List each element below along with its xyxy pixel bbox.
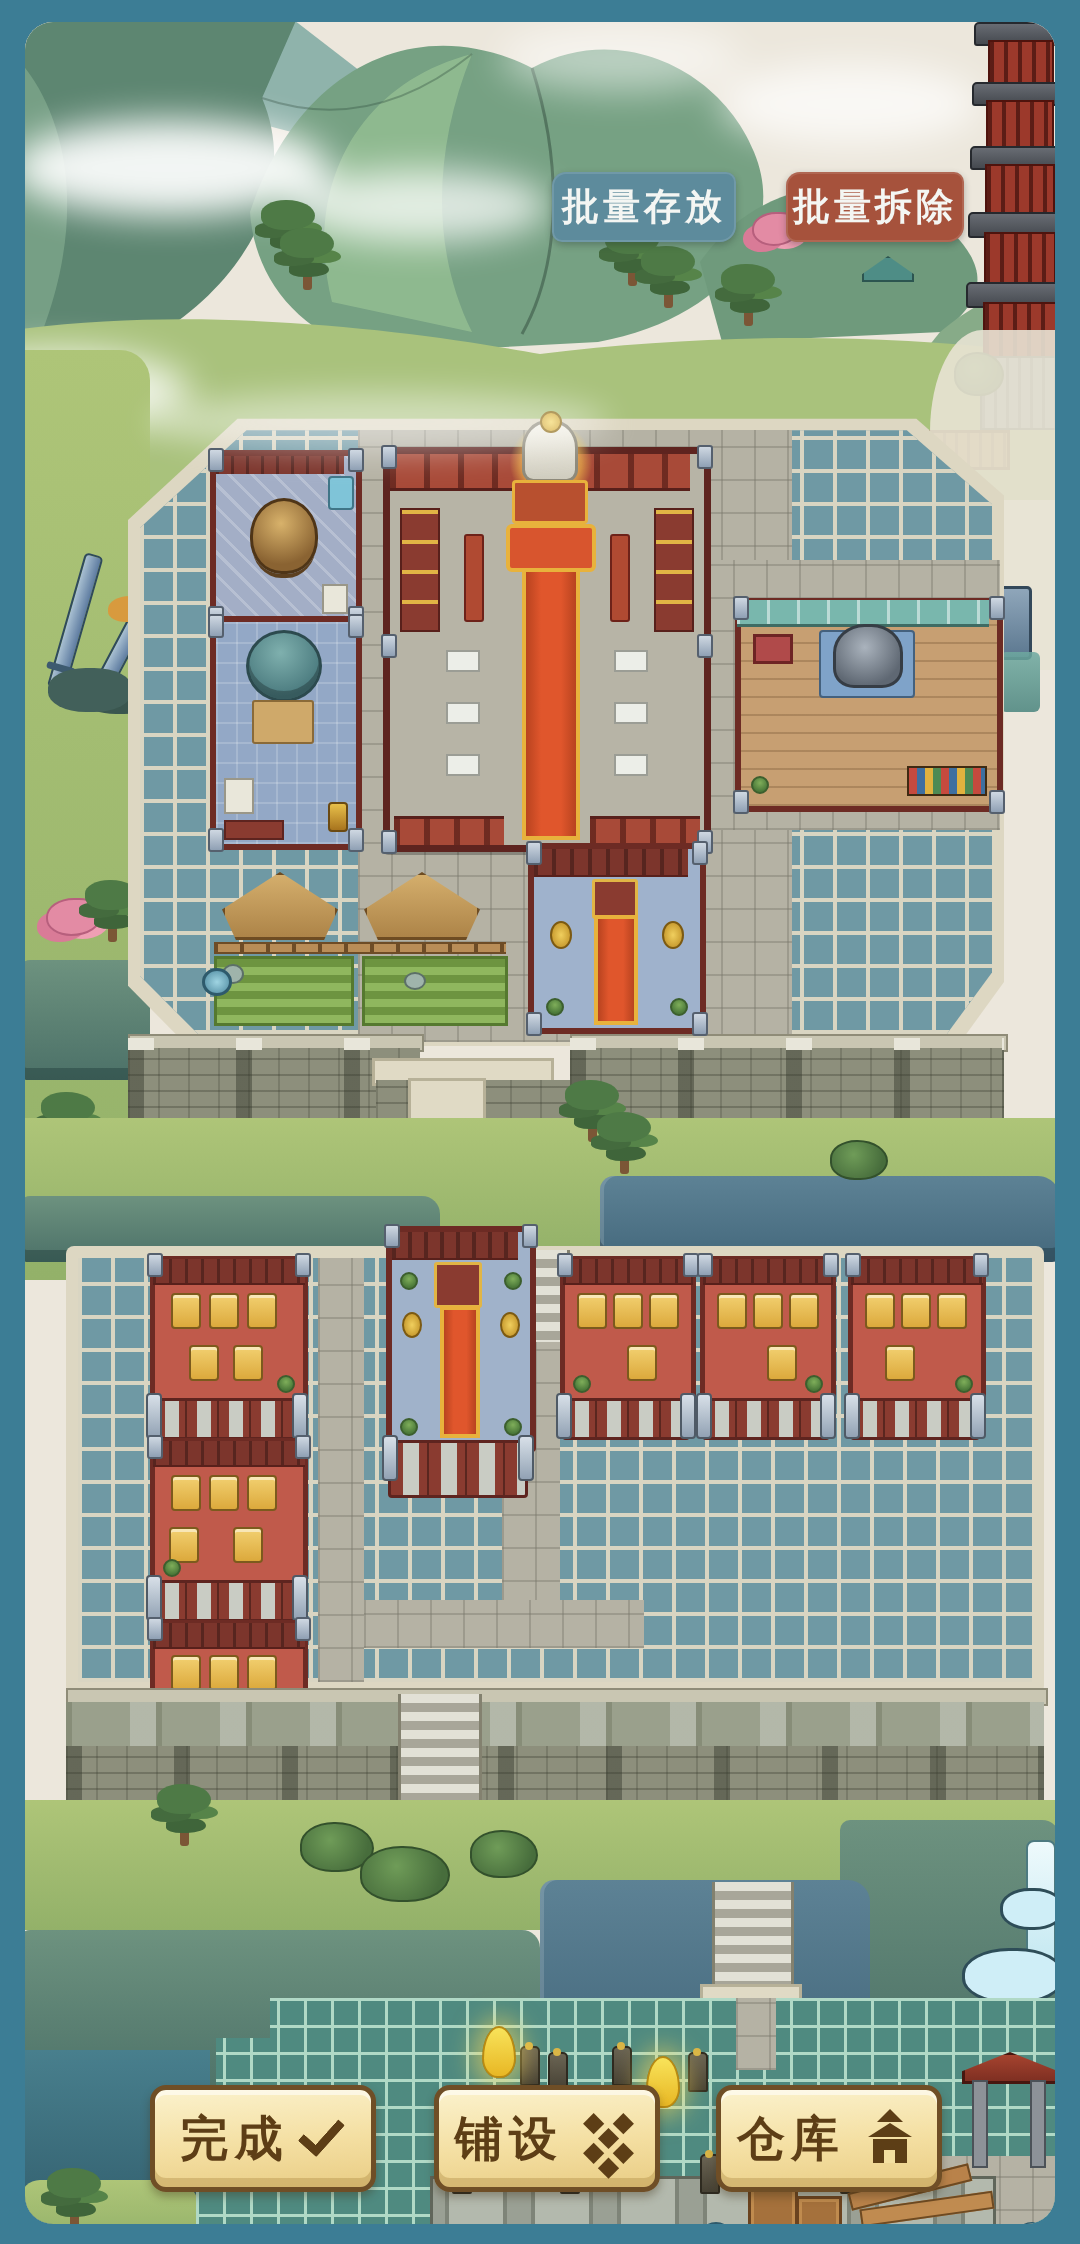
glass-canopy: [737, 600, 989, 627]
waterfall-pool: [962, 1948, 1064, 2004]
bronze-statue[interactable]: [688, 2052, 708, 2092]
batch-demolish-button[interactable]: 批量拆除: [786, 172, 964, 242]
bronze-statue[interactable]: [520, 2046, 540, 2086]
lantern: [402, 1312, 422, 1338]
reception-counter: [434, 1262, 482, 1308]
crate: [796, 2196, 842, 2242]
pine-tree: [180, 1812, 189, 1846]
batch-demolish-label: 批量拆除: [793, 186, 957, 227]
shrine-hall[interactable]: [528, 843, 706, 1034]
room-balcony: [562, 1398, 690, 1440]
shelf-band: [216, 456, 344, 474]
prayer-table: [614, 650, 648, 672]
side-hall-east[interactable]: [735, 598, 1003, 812]
gate-post: [1030, 2080, 1046, 2168]
stone-path-cross: [364, 1600, 644, 1648]
lantern: [662, 921, 684, 949]
stone-path-west: [318, 1258, 364, 1682]
guest-room[interactable]: [700, 1256, 836, 1408]
bell-pavilion-hall[interactable]: [210, 616, 362, 850]
bush: [470, 1830, 538, 1878]
bench: [224, 820, 284, 840]
water-jar: [1016, 2222, 1048, 2244]
water-jar: [700, 2222, 732, 2244]
pine-tree: [108, 908, 117, 942]
lantern: [500, 1312, 520, 1338]
guest-room[interactable]: [560, 1256, 696, 1408]
front-bench: [394, 816, 504, 845]
warehouse-label: 仓库: [737, 2107, 845, 2171]
check-icon: [297, 2109, 344, 2158]
east-altar-cabinets: [654, 508, 694, 632]
water-jar: [202, 968, 232, 996]
wall-art: [753, 634, 793, 664]
shrine-altar: [592, 879, 638, 919]
lower-wall-stairs: [398, 1694, 482, 1812]
prayer-table: [446, 702, 480, 724]
pine-tree: [628, 252, 637, 286]
farm-fence: [214, 942, 506, 954]
bookshelf[interactable]: [907, 766, 987, 796]
pillar: [610, 534, 630, 622]
bottom-path: [736, 1998, 776, 2070]
prayer-mat: [252, 700, 314, 744]
pine-tree: [70, 2196, 79, 2230]
floor-lantern: [328, 802, 348, 832]
statue-altar: [512, 480, 588, 524]
paper-mat: [322, 584, 348, 614]
farm-field[interactable]: [362, 956, 508, 1026]
front-bench: [590, 816, 700, 845]
incense-hall[interactable]: [210, 450, 362, 628]
rock: [48, 668, 132, 712]
pine-tree: [620, 1140, 629, 1174]
west-altar-cabinets: [400, 508, 440, 632]
bronze-censer[interactable]: [250, 498, 318, 574]
pine-tree: [303, 256, 312, 290]
bell-canopy[interactable]: [246, 630, 322, 702]
scene-map: [0, 0, 1080, 2244]
hill-stairs: [712, 1882, 794, 1986]
guest-room[interactable]: [150, 1438, 308, 1590]
red-carpet: [522, 550, 580, 840]
prayer-table: [614, 702, 648, 724]
shrine-carpet: [594, 915, 638, 1025]
forge-machine[interactable]: [833, 624, 903, 688]
guest-room[interactable]: [848, 1256, 986, 1408]
pave-button[interactable]: 铺设: [434, 2085, 660, 2192]
pave-label: 铺设: [455, 2107, 563, 2171]
room-balcony: [702, 1398, 830, 1440]
water-basin: [328, 476, 354, 510]
pillar: [464, 534, 484, 622]
floor-tiles-icon: [577, 2108, 639, 2170]
room-balcony: [152, 1398, 302, 1440]
warehouse-button[interactable]: 仓库: [716, 2085, 942, 2192]
warehouse-icon: [859, 2109, 921, 2169]
lower-wall: [66, 1746, 1044, 1806]
batch-store-label: 批量存放: [562, 186, 726, 227]
room-balcony: [850, 1398, 980, 1440]
bush: [360, 1846, 450, 1902]
waterfall-pool: [1000, 1888, 1064, 1930]
main-hall[interactable]: [383, 447, 711, 852]
prayer-table: [446, 650, 480, 672]
paper-mat: [224, 778, 254, 814]
waterfall-stream: [1000, 652, 1040, 712]
prayer-table: [614, 754, 648, 776]
lantern: [550, 921, 572, 949]
pine-tree: [588, 1108, 597, 1142]
gate-post: [972, 2080, 988, 2168]
room-balcony: [152, 1580, 302, 1622]
guest-room[interactable]: [150, 1256, 308, 1408]
stepping-stone: [404, 972, 426, 990]
farm-plot[interactable]: [214, 872, 506, 1022]
mist: [150, 392, 610, 452]
batch-store-button[interactable]: 批量存放: [552, 172, 736, 242]
pine-tree: [664, 274, 673, 308]
finish-button[interactable]: 完成: [150, 2085, 376, 2192]
bush: [830, 1140, 888, 1180]
bronze-statue[interactable]: [612, 2046, 632, 2086]
prayer-table: [446, 754, 480, 776]
reception-hall[interactable]: [386, 1226, 536, 1452]
game-screen: 批量存放 批量拆除 完成 铺设 仓库: [0, 0, 1080, 2244]
reception-balcony: [388, 1440, 528, 1498]
pine-tree: [744, 292, 753, 326]
shrine-shelves: [534, 849, 688, 877]
finish-label: 完成: [181, 2107, 289, 2171]
altar-mat: [506, 524, 596, 572]
reception-carpet: [440, 1306, 480, 1438]
lower-wall-relief: [66, 1702, 1044, 1748]
